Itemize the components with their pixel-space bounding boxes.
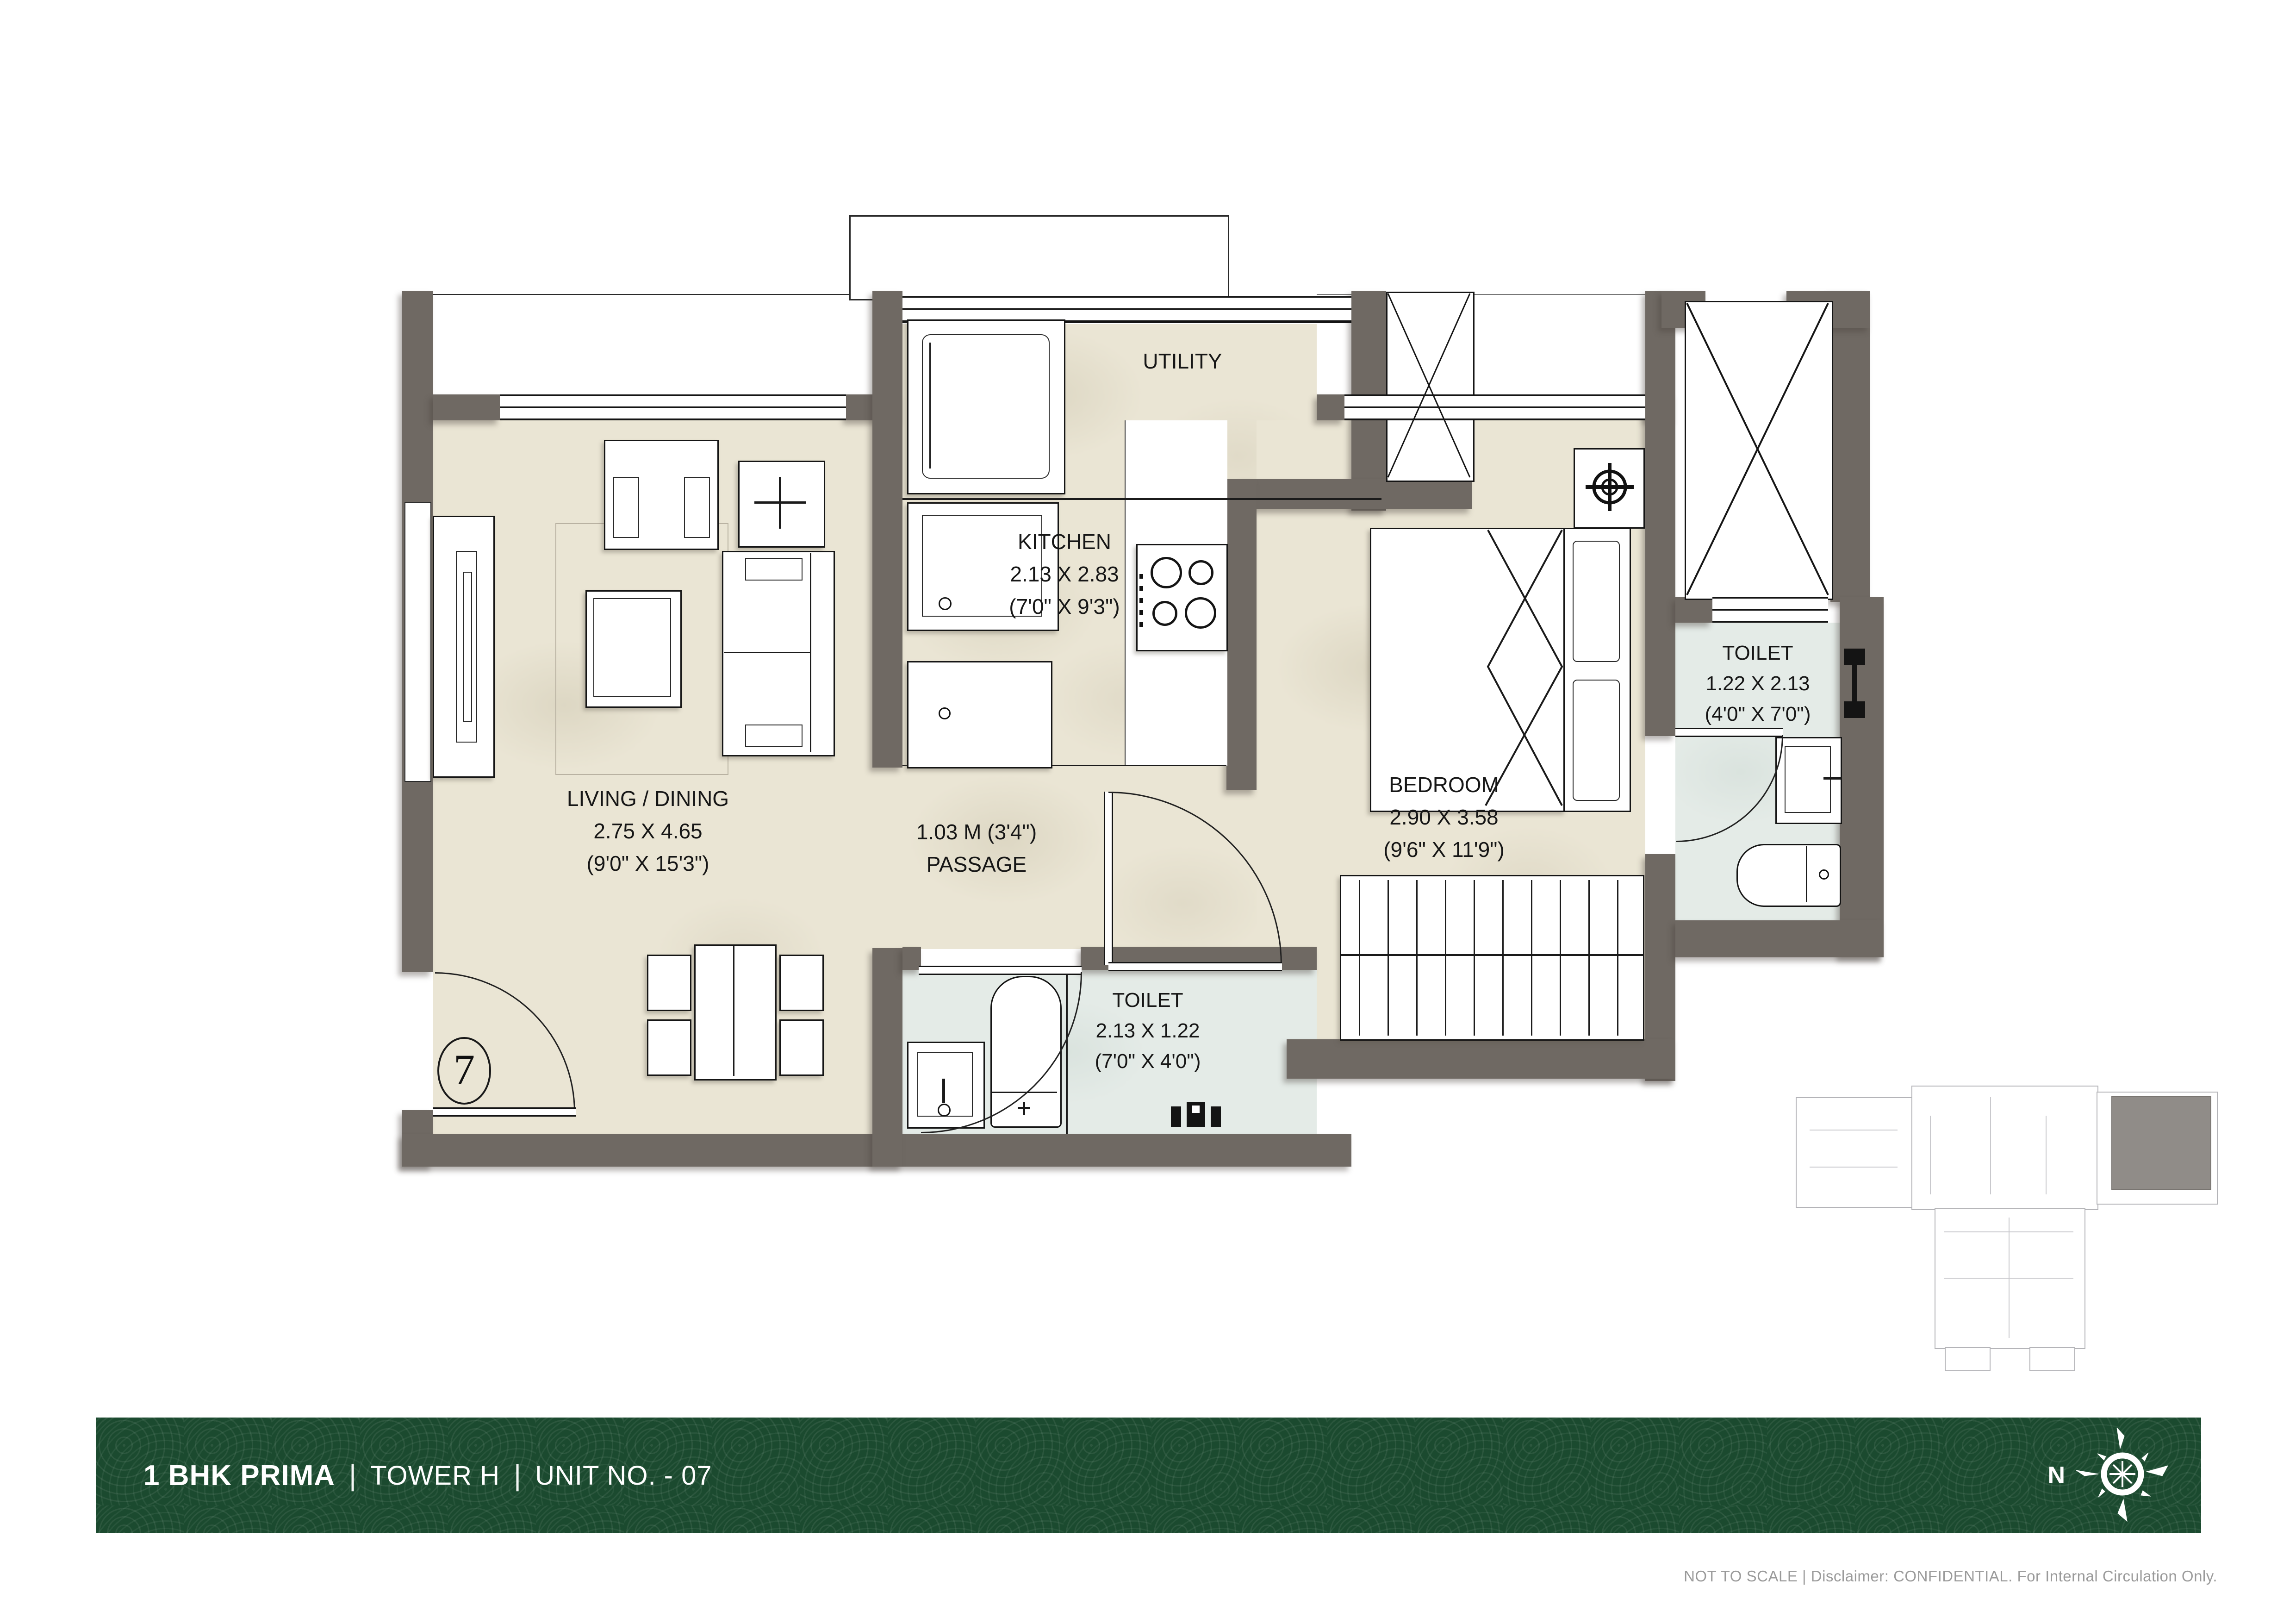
wall-toilet-common-top-left — [902, 947, 921, 970]
balcony-chajja-top-left — [417, 294, 874, 399]
key-plan-wing-left — [1796, 1097, 1913, 1208]
hob-knobs — [1139, 574, 1143, 630]
toilet-attached-faucet — [1823, 777, 1842, 780]
washing-machine-detail — [929, 343, 931, 468]
toilet-attached-wc-cistern-line — [1806, 846, 1807, 902]
kitchen-sink-drain — [939, 597, 952, 610]
footer-separator-2: | — [514, 1459, 521, 1492]
wall-shaft-bottom-left-pier — [1675, 597, 1712, 623]
north-label: N — [2047, 1462, 2065, 1489]
unit-number-label: UNIT NO. - 07 — [535, 1460, 712, 1491]
key-plan-foot-left — [1945, 1347, 1991, 1371]
living-window — [500, 394, 846, 420]
bed-fold-lines-icon — [1370, 528, 1563, 809]
living-dim-m: 2.75 X 4.65 — [567, 815, 729, 847]
pillow-1 — [1573, 541, 1620, 662]
hob-burner-1 — [1151, 557, 1182, 588]
toilet-common-wc-cistern-line — [992, 1092, 1057, 1093]
tv-screen — [463, 572, 472, 722]
washing-machine-drum — [922, 334, 1050, 479]
kitchen-dim-m: 2.13 X 2.83 — [1009, 558, 1120, 590]
wall-bedroom-right-upper — [1645, 291, 1675, 736]
hob-burner-2 — [1188, 560, 1213, 585]
dining-chair-1 — [647, 955, 691, 1011]
floor-plan-page: 7 — [0, 0, 2296, 1624]
wall-shaft-right — [1830, 291, 1870, 602]
toilet-common-wc-flush-h — [1018, 1107, 1030, 1109]
living-dining-label: LIVING / DINING 2.75 X 4.65 (9'0" X 15'3… — [567, 782, 729, 880]
toilet-common-faucet-stem — [942, 1079, 945, 1103]
key-plan-wing-mid — [1911, 1086, 2098, 1210]
armchair-armrest-right — [684, 477, 710, 538]
toilet-common-label: TOILET 2.13 X 1.22 (7'0" X 4'0") — [1095, 985, 1201, 1077]
bedroom-name: BEDROOM — [1383, 768, 1505, 801]
toilet-attached-dim-ft: (4'0" X 7'0") — [1705, 699, 1811, 730]
left-wall-ledge — [404, 502, 431, 782]
dining-chair-2 — [647, 1019, 691, 1076]
disclaimer-text: NOT TO SCALE | Disclaimer: CONFIDENTIAL.… — [1684, 1568, 2217, 1585]
toilet-common-faucet — [938, 1104, 951, 1117]
toilet-common-dim-ft: (7'0" X 4'0") — [1095, 1046, 1201, 1077]
key-plan-line — [2009, 1218, 2010, 1338]
toilet-common-name: TOILET — [1095, 985, 1201, 1016]
wall-bedroom-bottom — [1287, 1039, 1675, 1079]
dining-table — [694, 944, 777, 1081]
dining-chair-4 — [779, 1019, 824, 1076]
utility-kitchen-divider-line — [902, 498, 1381, 500]
duct-shaft-small-x-icon — [1386, 292, 1472, 479]
sofa-cushion-divider — [724, 652, 811, 653]
elevator-shaft-x-icon — [1685, 301, 1830, 597]
key-plan-line — [1930, 1116, 1931, 1194]
sofa-pad-bottom — [745, 725, 803, 747]
wall-pier-bedroom-left — [1317, 394, 1344, 420]
wall-under-duct — [1243, 479, 1472, 509]
plan-title: 1 BHK PRIMA — [143, 1459, 335, 1492]
sofa-pad-top — [745, 558, 803, 581]
kitchen-label: KITCHEN 2.13 X 2.83 (7'0" X 9'3") — [1009, 525, 1120, 623]
hob-burner-3 — [1152, 601, 1177, 626]
toilet-attached-name: TOILET — [1705, 638, 1811, 668]
utility-name: UTILITY — [1143, 345, 1222, 377]
key-plan-line — [1990, 1097, 1991, 1194]
kitchen-dim-ft: (7'0" X 9'3") — [1009, 590, 1120, 623]
footer-title-group: 1 BHK PRIMA | TOWER H | UNIT NO. - 07 — [143, 1418, 712, 1533]
ceiling-fan-icon — [1582, 455, 1637, 519]
wardrobe-rail — [1341, 954, 1643, 956]
compass-rose-icon — [2072, 1428, 2169, 1523]
key-plan-line — [1810, 1167, 1898, 1168]
side-table — [738, 461, 825, 548]
toilet-attached-wc-flush — [1819, 869, 1829, 880]
shower-mixer-icon — [1171, 1102, 1222, 1130]
utility-label: UTILITY — [1143, 345, 1222, 377]
coffee-table-inner — [593, 598, 671, 697]
dining-chair-3 — [779, 955, 824, 1011]
toilet-common-dim-m: 2.13 X 1.22 — [1095, 1016, 1201, 1046]
wall-living-kitchen — [872, 291, 902, 768]
compass-group: N — [2047, 1428, 2169, 1523]
passage-name: PASSAGE — [916, 848, 1037, 881]
wardrobe-hangers — [1345, 880, 1639, 1036]
kitchen-cabinet-unit — [907, 661, 1052, 768]
key-plan-line — [1810, 1130, 1898, 1131]
key-plan-foot-right — [2029, 1347, 2075, 1371]
entrance-door-leaf — [433, 1107, 576, 1117]
passage-door-leaf-open — [1108, 962, 1282, 971]
living-name: LIVING / DINING — [567, 782, 729, 815]
toilet-attached-dim-m: 1.22 X 2.13 — [1705, 668, 1811, 699]
footer-separator-1: | — [349, 1459, 356, 1492]
shaft-vent-window — [1712, 597, 1828, 623]
dining-table-center-line — [733, 946, 734, 1076]
hob — [1136, 544, 1228, 651]
hob-burner-4 — [1185, 597, 1216, 629]
living-dim-ft: (9'0" X 15'3") — [567, 847, 729, 880]
wall-pier-living-left — [433, 394, 500, 420]
key-plan-highlighted-unit — [2111, 1096, 2211, 1190]
key-plan-line — [2046, 1116, 2047, 1194]
armchair-armrest-left — [613, 477, 639, 538]
unit-number-badge: 7 — [437, 1037, 491, 1105]
wall-toilet-attached-bottom — [1675, 920, 1884, 957]
footer-bar: 1 BHK PRIMA | TOWER H | UNIT NO. - 07 N — [96, 1418, 2201, 1533]
wardrobe — [1340, 875, 1644, 1041]
tower-label: TOWER H — [370, 1460, 500, 1491]
wall-kitchen-bedroom — [1226, 479, 1257, 790]
passage-label: 1.03 M (3'4") PASSAGE — [916, 816, 1037, 881]
towel-rail-icon — [1838, 646, 1871, 725]
bedroom-dim-ft: (9'6" X 11'9") — [1383, 833, 1505, 866]
utility-ledge-box — [849, 215, 1229, 300]
kitchen-name: KITCHEN — [1009, 525, 1120, 558]
key-plan-stem — [1935, 1208, 2085, 1349]
side-table-plus-v — [779, 477, 781, 529]
bedroom-label: BEDROOM 2.90 X 3.58 (9'6" X 11'9") — [1383, 768, 1505, 866]
wall-living-toilet-common — [872, 948, 902, 1167]
key-plan — [1796, 1079, 2221, 1370]
toilet-attached-label: TOILET 1.22 X 2.13 (4'0" X 7'0") — [1705, 638, 1811, 730]
pillow-2 — [1573, 680, 1620, 801]
bedroom-dim-m: 2.90 X 3.58 — [1383, 801, 1505, 833]
toilet-attached-washbasin-bowl — [1785, 746, 1831, 813]
kitchen-cabinet-knob — [939, 707, 951, 719]
passage-dim: 1.03 M (3'4") — [916, 816, 1037, 848]
